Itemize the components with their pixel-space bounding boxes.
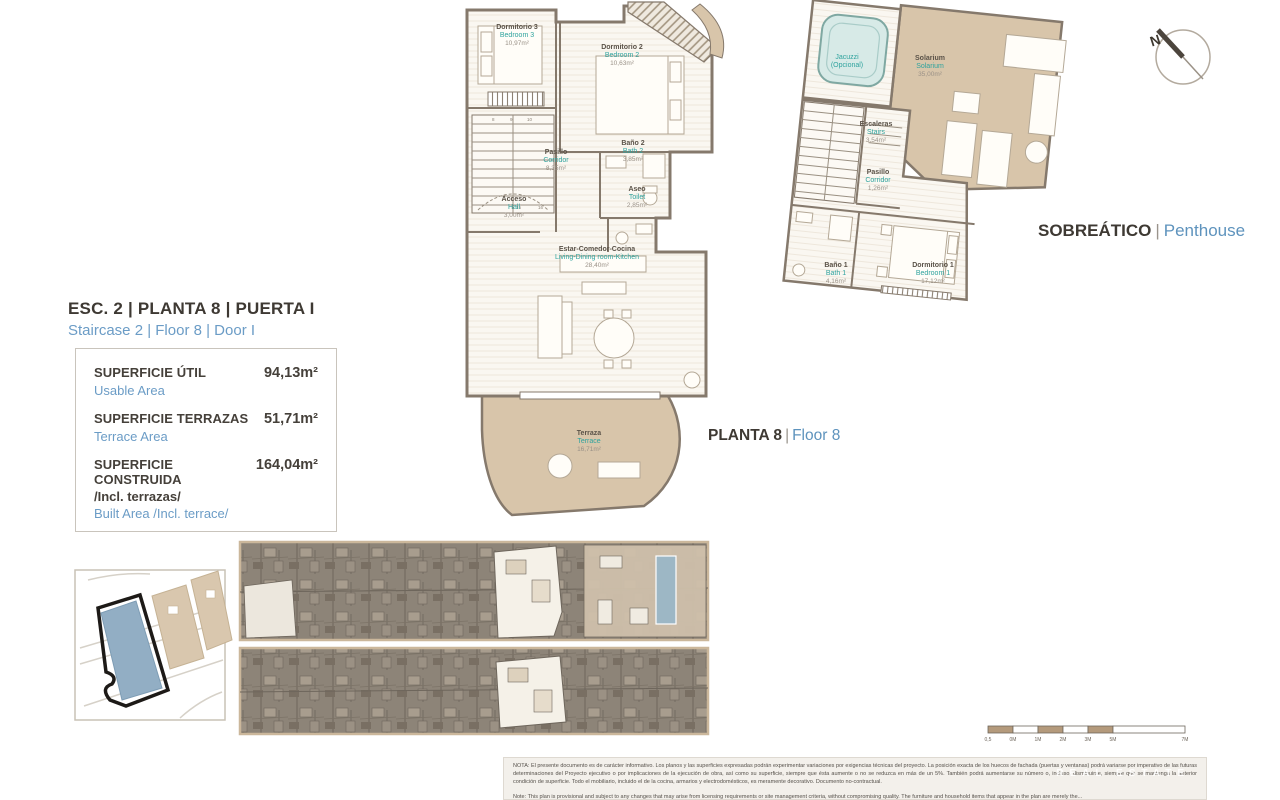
scale-bar: 0,5 0M 1M 2M 3M 5M 7M xyxy=(985,726,1189,743)
title-separator: | xyxy=(782,427,792,444)
floor-title-es: PLANTA 8 xyxy=(708,427,782,444)
room-name-en: Hall xyxy=(454,204,574,212)
area-value: 164,04m² xyxy=(256,457,318,473)
keyplan-detail xyxy=(532,580,550,602)
floor-title-en: Floor 8 xyxy=(792,427,840,444)
room-name-es: Baño 2 xyxy=(573,140,693,148)
room-name-en: Bedroom 1 xyxy=(873,270,993,278)
room-name-en: Terrace xyxy=(529,438,649,446)
room-area: 2,85m² xyxy=(577,202,697,210)
scale-label: 7M xyxy=(1182,737,1189,743)
room-name-en: Corridor xyxy=(496,157,616,165)
penthouse-title: SOBREÁTICO|Penthouse xyxy=(1038,221,1245,241)
area-label-en: Built Area /Incl. terrace/ xyxy=(94,506,318,521)
closet-hatch-bedroom3 xyxy=(488,92,544,106)
room-area: 10,63m² xyxy=(562,60,682,68)
siteplan-detail xyxy=(206,590,215,598)
keyplan-detail xyxy=(598,600,612,624)
room-label-dormitorio1: Dormitorio 1 Bedroom 1 17,12m² xyxy=(873,262,993,286)
room-name-es: Terraza xyxy=(529,430,649,438)
unit-title-en: Staircase 2 | Floor 8 | Door I xyxy=(68,322,315,339)
room-label-escaleras: Escaleras Stairs 3,54m² xyxy=(816,121,936,145)
room-name-en: Solarium xyxy=(870,63,990,71)
room-name-es: Aseo xyxy=(577,186,697,194)
scale-label: 0,5 xyxy=(985,737,992,743)
room-label-aseo: Aseo Toilet 2,85m² xyxy=(577,186,697,210)
penthouse-title-es: SOBREÁTICO xyxy=(1038,221,1151,240)
keyplan-light-patch xyxy=(244,580,296,638)
room-name-es: Dormitorio 3 xyxy=(457,24,577,32)
stair-number: 10 xyxy=(527,117,533,122)
terrace-area-shape xyxy=(482,396,680,515)
penthouse-title-en: Penthouse xyxy=(1164,221,1245,240)
keyplan-pool xyxy=(656,556,676,624)
room-area: 8,35m² xyxy=(496,165,616,173)
room-label-acceso: Acceso Hall 3,00m² xyxy=(454,196,574,220)
areas-summary-box: SUPERFICIE ÚTIL 94,13m² Usable Area SUPE… xyxy=(75,348,337,532)
highlighted-unit-lower xyxy=(496,656,566,728)
scale-label: 0M xyxy=(1010,737,1017,743)
area-label-es: SUPERFICIE TERRAZAS xyxy=(94,411,248,426)
disclaimer-en: Note: This plan is provisional and subje… xyxy=(513,794,1197,800)
scale-label: 2M xyxy=(1060,737,1067,743)
room-area: 3,00m² xyxy=(454,212,574,220)
room-name-es: Acceso xyxy=(454,196,574,204)
scale-label: 1M xyxy=(1035,737,1042,743)
watermark: REAL ESTATE xyxy=(1056,767,1190,782)
room-name-es: Solarium xyxy=(870,55,990,63)
room-label-terraza: Terraza Terrace 16,71m² xyxy=(529,430,649,454)
unit-title: ESC. 2 | PLANTA 8 | PUERTA I Staircase 2… xyxy=(68,299,315,339)
area-label-es2: /Incl. terrazas/ xyxy=(94,489,318,504)
keyplan-detail xyxy=(630,608,648,624)
keyplan-detail xyxy=(600,556,622,568)
terrace-window xyxy=(520,392,660,399)
room-name-en: Toilet xyxy=(577,194,697,202)
room-name-en: Stairs xyxy=(816,129,936,137)
area-row-terrace: SUPERFICIE TERRAZAS 51,71m² Terrace Area xyxy=(94,411,318,444)
area-value: 94,13m² xyxy=(264,365,318,381)
keyplan-strip-lower xyxy=(240,648,708,734)
area-label-es: SUPERFICIE ÚTIL xyxy=(94,365,206,380)
siteplan-detail xyxy=(168,606,178,614)
keyplan-detail xyxy=(506,560,526,574)
room-area: 1,26m² xyxy=(818,185,938,193)
area-row-usable: SUPERFICIE ÚTIL 94,13m² Usable Area xyxy=(94,365,318,398)
room-name-en: Bedroom 3 xyxy=(457,32,577,40)
floorplan-page: 8 9 10 15 16 xyxy=(0,0,1280,800)
keyplan-detail xyxy=(508,668,528,682)
keyplan-strip-upper xyxy=(240,542,708,640)
scale-bar-labels: 0,5 0M 1M 2M 3M 5M 7M xyxy=(985,737,1189,743)
room-area: 35,00m² xyxy=(870,71,990,79)
room-label-living: Estar-Comedor-Cocina Living-Dining room-… xyxy=(537,246,657,270)
disclaimer-note: NOTA: El presente documento es de caráct… xyxy=(503,757,1207,800)
room-name-es: Estar-Comedor-Cocina xyxy=(537,246,657,254)
room-area: 17,12m² xyxy=(873,278,993,286)
area-label-en: Usable Area xyxy=(94,383,318,398)
floor-title: PLANTA 8|Floor 8 xyxy=(708,427,840,445)
area-label-es: SUPERFICIE CONSTRUIDA xyxy=(94,457,256,487)
keyplan-detail xyxy=(534,690,552,712)
room-area: 16,71m² xyxy=(529,446,649,454)
room-name-en: Living-Dining room-Kitchen xyxy=(537,254,657,262)
room-name-es: Dormitorio 1 xyxy=(873,262,993,270)
title-separator: | xyxy=(1151,221,1163,240)
area-value: 51,71m² xyxy=(264,411,318,427)
room-label-pasillo: Pasillo Corridor 8,35m² xyxy=(496,149,616,173)
compass: N xyxy=(1148,30,1210,84)
room-area: 10,97m² xyxy=(457,40,577,48)
scale-label: 5M xyxy=(1110,737,1117,743)
scale-label: 3M xyxy=(1085,737,1092,743)
highlighted-unit-upper xyxy=(494,546,562,638)
room-label-dormitorio2: Dormitorio 2 Bedroom 2 10,63m² xyxy=(562,44,682,68)
room-label-solarium: Solarium Solarium 35,00m² xyxy=(870,55,990,79)
room-name-es: Dormitorio 2 xyxy=(562,44,682,52)
room-label-pasillo-ph: Pasillo Corridor 1,26m² xyxy=(818,169,938,193)
area-row-built: SUPERFICIE CONSTRUIDA 164,04m² /Incl. te… xyxy=(94,457,318,521)
room-name-es: Escaleras xyxy=(816,121,936,129)
siteplan xyxy=(75,570,232,720)
area-label-en: Terrace Area xyxy=(94,429,318,444)
unit-title-es: ESC. 2 | PLANTA 8 | PUERTA I xyxy=(68,299,315,319)
room-area: 28,40m² xyxy=(537,262,657,270)
room-name-es: Pasillo xyxy=(496,149,616,157)
room-name-en: Bedroom 2 xyxy=(562,52,682,60)
room-name-es: Pasillo xyxy=(818,169,938,177)
room-name-en: Corridor xyxy=(818,177,938,185)
room-area: 3,54m² xyxy=(816,137,936,145)
room-label-dormitorio3: Dormitorio 3 Bedroom 3 10,97m² xyxy=(457,24,577,48)
